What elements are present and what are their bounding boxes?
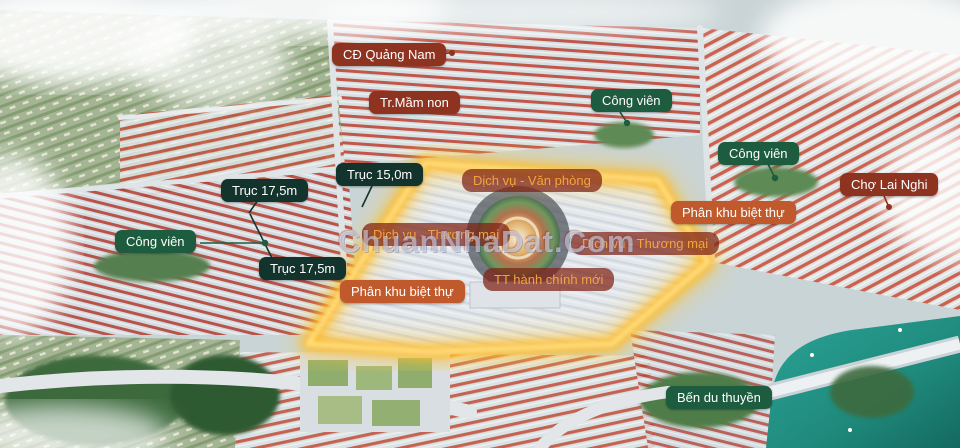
- dot-cong-vien-left: [262, 240, 268, 246]
- pointer-cong-vien-top: [620, 112, 626, 121]
- label-tt-hanh-chinh-moi: TT hành chính mới: [483, 268, 614, 291]
- label-truc-17-5m-lower: Trục 17,5m: [259, 257, 346, 280]
- masterplan-image: CĐ Quảng Nam Tr.Mầm non Công viên Công v…: [0, 0, 960, 448]
- label-cho-lai-nghi: Chợ Lai Nghi: [840, 173, 938, 196]
- label-dich-vu-van-phong: Dịch vụ - Văn phòng: [462, 169, 602, 192]
- label-cong-vien-top: Công viên: [591, 89, 672, 112]
- pointer-truc-15-0m: [362, 186, 372, 207]
- pointer-cho-lai-nghi: [884, 196, 888, 205]
- pointer-truc-17-5m-lower: [250, 214, 272, 258]
- label-dich-vu-thuong-mai-left: Dịch vụ - Thương mại: [362, 223, 510, 246]
- label-dich-vu-thuong-mai-right: Dịch vụ - Thương mại: [571, 232, 719, 255]
- label-tr-mam-non: Tr.Mầm non: [369, 91, 460, 114]
- label-phan-khu-biet-thu-left: Phân khu biệt thự: [340, 280, 465, 303]
- dot-cong-vien-top: [624, 120, 630, 126]
- dot-cd-quang-nam: [449, 50, 455, 56]
- label-cd-quang-nam: CĐ Quảng Nam: [332, 43, 446, 66]
- dot-cong-vien-right: [772, 175, 778, 181]
- label-cong-vien-right: Công viên: [718, 142, 799, 165]
- label-truc-17-5m-upper: Trục 17,5m: [221, 179, 308, 202]
- dot-cho-lai-nghi: [886, 204, 892, 210]
- label-cong-vien-left: Công viên: [115, 230, 196, 253]
- label-phan-khu-biet-thu-right: Phân khu biệt thự: [671, 201, 796, 224]
- label-truc-15-0m: Trục 15,0m: [336, 163, 423, 186]
- label-ben-du-thuyen: Bến du thuyền: [666, 386, 772, 409]
- pointer-cong-vien-right: [768, 164, 774, 176]
